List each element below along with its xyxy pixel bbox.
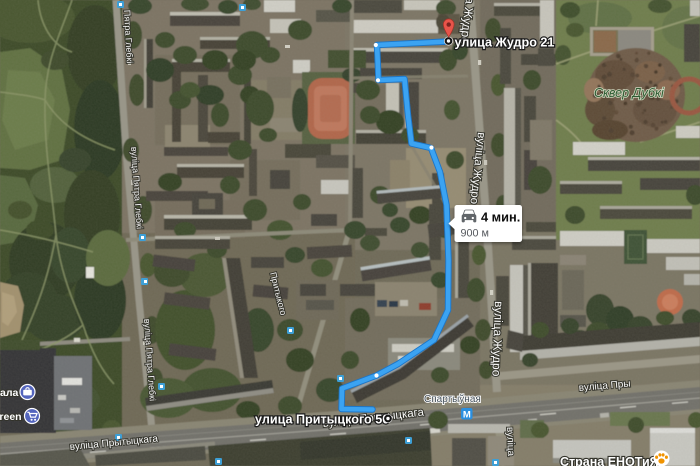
svg-text:900 м: 900 м — [461, 228, 489, 240]
svg-text:green: green — [0, 411, 22, 423]
svg-text:улица Притыцкого 50: улица Притыцкого 50 — [255, 413, 389, 427]
svg-text:вуліца: вуліца — [504, 427, 516, 457]
svg-text:Сквер Дубкі: Сквер Дубкі — [594, 86, 665, 100]
svg-text:4 мин.: 4 мин. — [481, 210, 520, 225]
svg-text:улица Жудро 21: улица Жудро 21 — [455, 36, 555, 50]
svg-text:Страна ЕНОТиЯ: Страна ЕНОТиЯ — [560, 455, 659, 466]
svg-text:Спартыўная: Спартыўная — [424, 393, 481, 405]
svg-text:вуліца Жудро: вуліца Жудро — [489, 301, 506, 377]
svg-text:M: M — [463, 409, 471, 420]
svg-text:ала: ала — [0, 387, 19, 399]
